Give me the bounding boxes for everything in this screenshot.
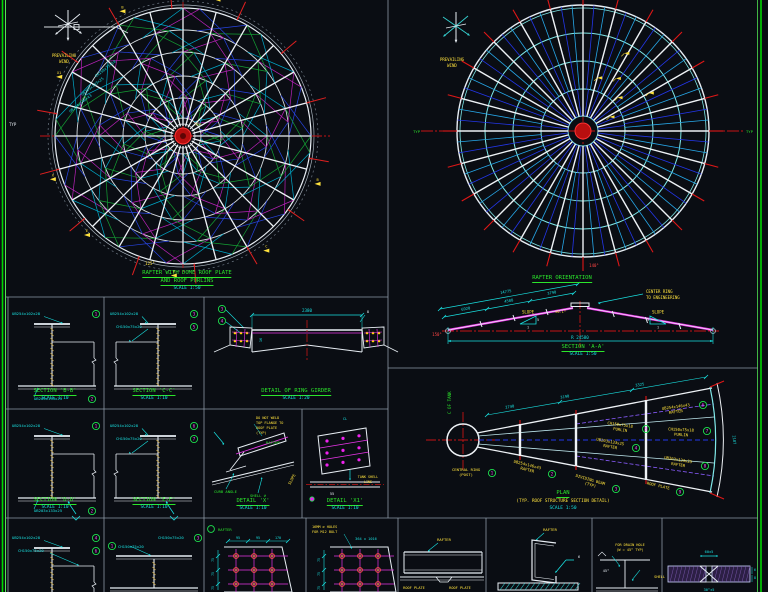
circled-number: 8 (704, 464, 707, 470)
circled-number: 4 (95, 536, 98, 542)
bd3-angle: 45° (603, 569, 610, 573)
section-label: UB203x133x25 (34, 508, 63, 513)
section-aa-drawing: 69204588379014775R 24580SLOPE15SLOPE15±0… (438, 282, 719, 347)
detail-x1-shell-2: LINE (364, 480, 372, 484)
circled-number: 6 (702, 403, 705, 409)
slope-den: 5 (647, 318, 649, 322)
dome-center-typ: TYP (195, 123, 201, 127)
cone-label-2: PURLIN (613, 426, 628, 433)
circled-number: 4 (635, 446, 638, 452)
dome-flag-label: C (265, 245, 267, 249)
circled-number: 2 (91, 509, 94, 515)
rg-weld: 8 (367, 310, 369, 314)
section-label: CH150x75x20 (18, 548, 44, 553)
aa-dim-bottom: R 24580 (571, 335, 589, 340)
cone-dim: 3190 (560, 393, 571, 400)
bp1-dim-left: 75 (211, 572, 215, 576)
detail-x-drawing: CURB ANGLESHELL ⌀RAFTERDO NOT WELDTOP FL… (212, 416, 297, 498)
circled-number: 1 (491, 471, 494, 477)
circled-number: 6 (193, 424, 196, 430)
slope-den: 5 (537, 318, 539, 322)
detail-x-shell: SHELL ⌀ (250, 493, 267, 498)
bd2-weld: 6 (578, 555, 580, 559)
orientation-side-right: TYP (746, 129, 754, 134)
circled-number: 2 (91, 397, 94, 403)
section-label: UB254x102x28 (12, 311, 41, 316)
cone-axis-label: C OF TANK (447, 391, 452, 414)
bp2-dim-left: 75 (317, 586, 321, 590)
circled-number: 5 (645, 427, 648, 433)
rafter-orientation-plan: TYPTYP (413, 0, 753, 304)
detail-x-note: ROOF PLATE (256, 426, 277, 430)
slope-num: 1 (657, 326, 659, 330)
bp1-dim: 95 (256, 536, 260, 540)
dome-flag-label: B (316, 178, 318, 182)
bp1-dim-left: 75 (211, 586, 215, 590)
dome-flag-label: X1 (57, 71, 61, 75)
cone-dim: 3325 (635, 381, 645, 388)
bp2-dim-left: 75 (317, 572, 321, 576)
section-details: UB254x102x281UB203x133x252UB254x102x283C… (12, 310, 198, 520)
bd4-dim-top: 60±5 (705, 550, 714, 554)
aa-dim: 14775 (500, 288, 512, 295)
section-label: UB254x102x28 (110, 311, 139, 316)
plan-cone-drawing: C OF TANKCENTRAL RING(POST)1UB254x146x43… (426, 375, 738, 499)
detail-x-rafter: RAFTER (266, 440, 280, 445)
slope-num: 1 (527, 326, 529, 330)
bp1-dim-left: 75 (211, 558, 215, 562)
cone-dim: 2187 (731, 435, 737, 445)
slope-label: SLOPE (652, 310, 665, 315)
bs2-label: CH150x75x20 (158, 535, 184, 540)
ring-girder-drawing: 342380168 (214, 305, 398, 362)
bd3-note: (W = 45° TYP) (616, 548, 643, 552)
bp1-dim: 170 (275, 536, 281, 540)
cone-label-2: RAFTER (668, 408, 683, 415)
section-label: UB254x102x28 (12, 423, 41, 428)
cad-drawing-canvas: BCDEXX1BCCH150x75x18UB203x133x25UB254x14… (0, 0, 768, 592)
bd4-t: 8 (754, 576, 756, 580)
cone-dim: 2740 (505, 403, 516, 410)
dome-flag-label: B (121, 5, 123, 9)
bp1-dim: 95 (236, 536, 240, 540)
bp1-rafter: RAFTER (218, 527, 232, 532)
bd4-label: SHELL (654, 575, 665, 579)
orientation-side-left: TYP (413, 129, 421, 134)
bd4-t: 6 (754, 568, 756, 572)
dome-flag-label: X (52, 173, 55, 177)
rg-dim-top: 2380 (302, 308, 313, 313)
detail-x1-cl: CL (343, 417, 347, 421)
bd1-plate: ROOF PLATE (449, 586, 471, 590)
circled-number: 9 (679, 490, 682, 496)
circled-number: 2 (551, 472, 554, 478)
circled-number: 7 (706, 429, 709, 435)
circled-number: 1 (95, 312, 98, 318)
circled-number: 1 (95, 424, 98, 430)
frame-borders (3, 0, 762, 592)
rg-dim-web: 16 (259, 338, 263, 342)
circled-number: 6 (95, 549, 98, 555)
bd3-note: FOR DRAIN HOLE (615, 543, 645, 547)
bd2-rafter: RAFTER (543, 527, 557, 532)
aa-dim: 4588 (504, 297, 515, 304)
dome-flag-label: E (86, 229, 88, 233)
circled-number: 4 (221, 319, 224, 325)
aa-ridge-note: ±0.1° (555, 310, 566, 314)
slope-label: SLOPE (522, 310, 535, 315)
wind-symbol-left (55, 10, 82, 41)
wind-symbol-right (443, 12, 470, 43)
bp2-dim-left: 75 (317, 558, 321, 562)
bp2-note: FOR M12 BOLT (312, 530, 338, 534)
detail-x-note: TOP FLANGE TO (256, 421, 283, 425)
bd1-rafter: RAFTER (437, 537, 451, 542)
section-label: CH150x75x20 (116, 436, 142, 441)
detail-x1-drawing: CLTANK SHELLLINE55 (306, 417, 384, 501)
cone-label-2: (POST) (459, 472, 473, 477)
section-label: UB254x102x28 (12, 535, 41, 540)
circled-number: 5 (193, 325, 196, 331)
bp2-note: 16MM ⌀ HOLES (312, 525, 337, 529)
circled-number: 7 (193, 437, 196, 443)
circled-number: 1 (111, 544, 114, 550)
detail-x-note: (TYP) (256, 431, 267, 435)
cone-label-2: PURLIN (674, 432, 689, 438)
cone-label-2: RAFTER (671, 461, 686, 468)
detail-x-curb: CURB ANGLE (214, 489, 238, 494)
circled-number: 3 (221, 307, 224, 313)
bd1-plate: ROOF PLATE (403, 586, 425, 590)
bd4-dim-bottom: 30°±5 (704, 588, 715, 592)
detail-x1-dim: 55 (330, 492, 334, 496)
bottom-row-details: UB254x102x284CH150x75x2061CH150x75x20CH1… (12, 525, 756, 592)
section-label: UB254x102x28 (110, 423, 139, 428)
detail-x-note: DO NOT WELD (256, 416, 279, 420)
circled-number: 3 (193, 312, 196, 318)
aa-dim: 6920 (461, 305, 472, 312)
circled-number: 3 (197, 536, 200, 542)
detail-x-slope: SLOPE (287, 472, 297, 485)
section-label: CH150x75x20 (116, 324, 142, 329)
detail-x1-shell-1: TANK SHELL (358, 475, 378, 479)
dome-framing-plan: BCDEXX1BCCH150x75x18UB203x133x25UB254x14… (37, 0, 330, 283)
aa-dim: 3790 (547, 289, 558, 296)
cad-line-art: BCDEXX1BCCH150x75x18UB203x133x25UB254x14… (0, 0, 768, 592)
section-label: UB203x133x25 (34, 396, 63, 401)
circled-number: 3 (615, 487, 618, 493)
dome-flag-label: D (173, 269, 175, 273)
bp2-dim-top: 364 x 1016 (355, 537, 377, 541)
